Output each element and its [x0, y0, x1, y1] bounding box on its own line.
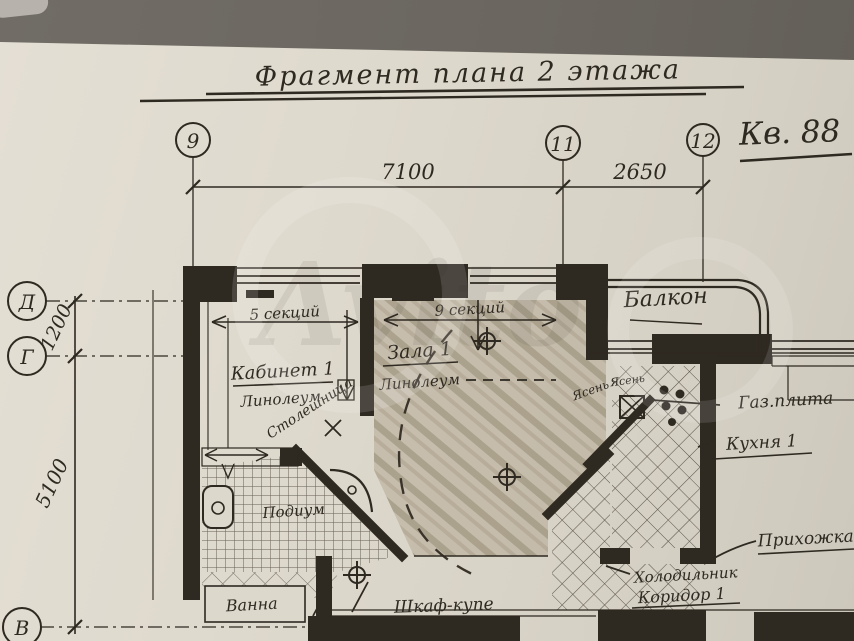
- wardrobe-label: Шкаф-купе: [393, 594, 494, 618]
- dim-5100: 5100: [30, 455, 73, 512]
- kitchen-label: Кухня 1: [725, 431, 798, 455]
- hallway-label: Прихожка: [756, 527, 854, 552]
- wall-pier-left: [183, 266, 237, 302]
- wall-left-exterior: [183, 298, 200, 600]
- row-label-g: Г: [19, 345, 34, 369]
- toilet: [203, 486, 233, 528]
- dim-7100: 7100: [381, 160, 434, 184]
- blueprint-paper: Фрагмент плана 2 этажа Кв. 88 9 11 12 Д …: [0, 0, 854, 641]
- floor-plan-svg: Фрагмент плана 2 этажа Кв. 88 9 11 12 Д …: [0, 0, 854, 641]
- photo-of-floor-plan: Фрагмент плана 2 этажа Кв. 88 9 11 12 Д …: [0, 0, 854, 641]
- dim-2650: 2650: [612, 160, 666, 184]
- column-label-11: 11: [550, 132, 575, 156]
- wall-bottom-wardrobe: [308, 616, 520, 641]
- balcony-underline: [630, 320, 702, 324]
- leader-wardrobe-2: [352, 582, 368, 612]
- column-label-9: 9: [187, 129, 200, 153]
- row-label-d: Д: [18, 290, 36, 314]
- row-label-v: В: [14, 616, 30, 640]
- wall-kitchen-top: [652, 334, 772, 364]
- corner-sink-drain: [348, 486, 356, 494]
- wall-kitchen-right: [700, 356, 716, 564]
- wall-bottom-right: [754, 612, 854, 641]
- drawing-title: Фрагмент плана 2 этажа: [254, 54, 681, 92]
- title-block: Фрагмент плана 2 этажа Кв. 88: [140, 54, 852, 161]
- wall-balcony-pier: [586, 298, 608, 360]
- apartment-number: Кв. 88: [737, 113, 840, 153]
- background-object: [0, 0, 49, 19]
- wall-kitchen-bottom-1: [600, 548, 630, 564]
- dim-1200: 1200: [36, 301, 76, 354]
- wall-bottom-corridor: [598, 610, 706, 641]
- column-label-12: 12: [690, 129, 715, 153]
- watermark-text: Avito: [249, 238, 583, 373]
- apartment-underline: [740, 154, 852, 161]
- bath-label: Ванна: [224, 594, 278, 616]
